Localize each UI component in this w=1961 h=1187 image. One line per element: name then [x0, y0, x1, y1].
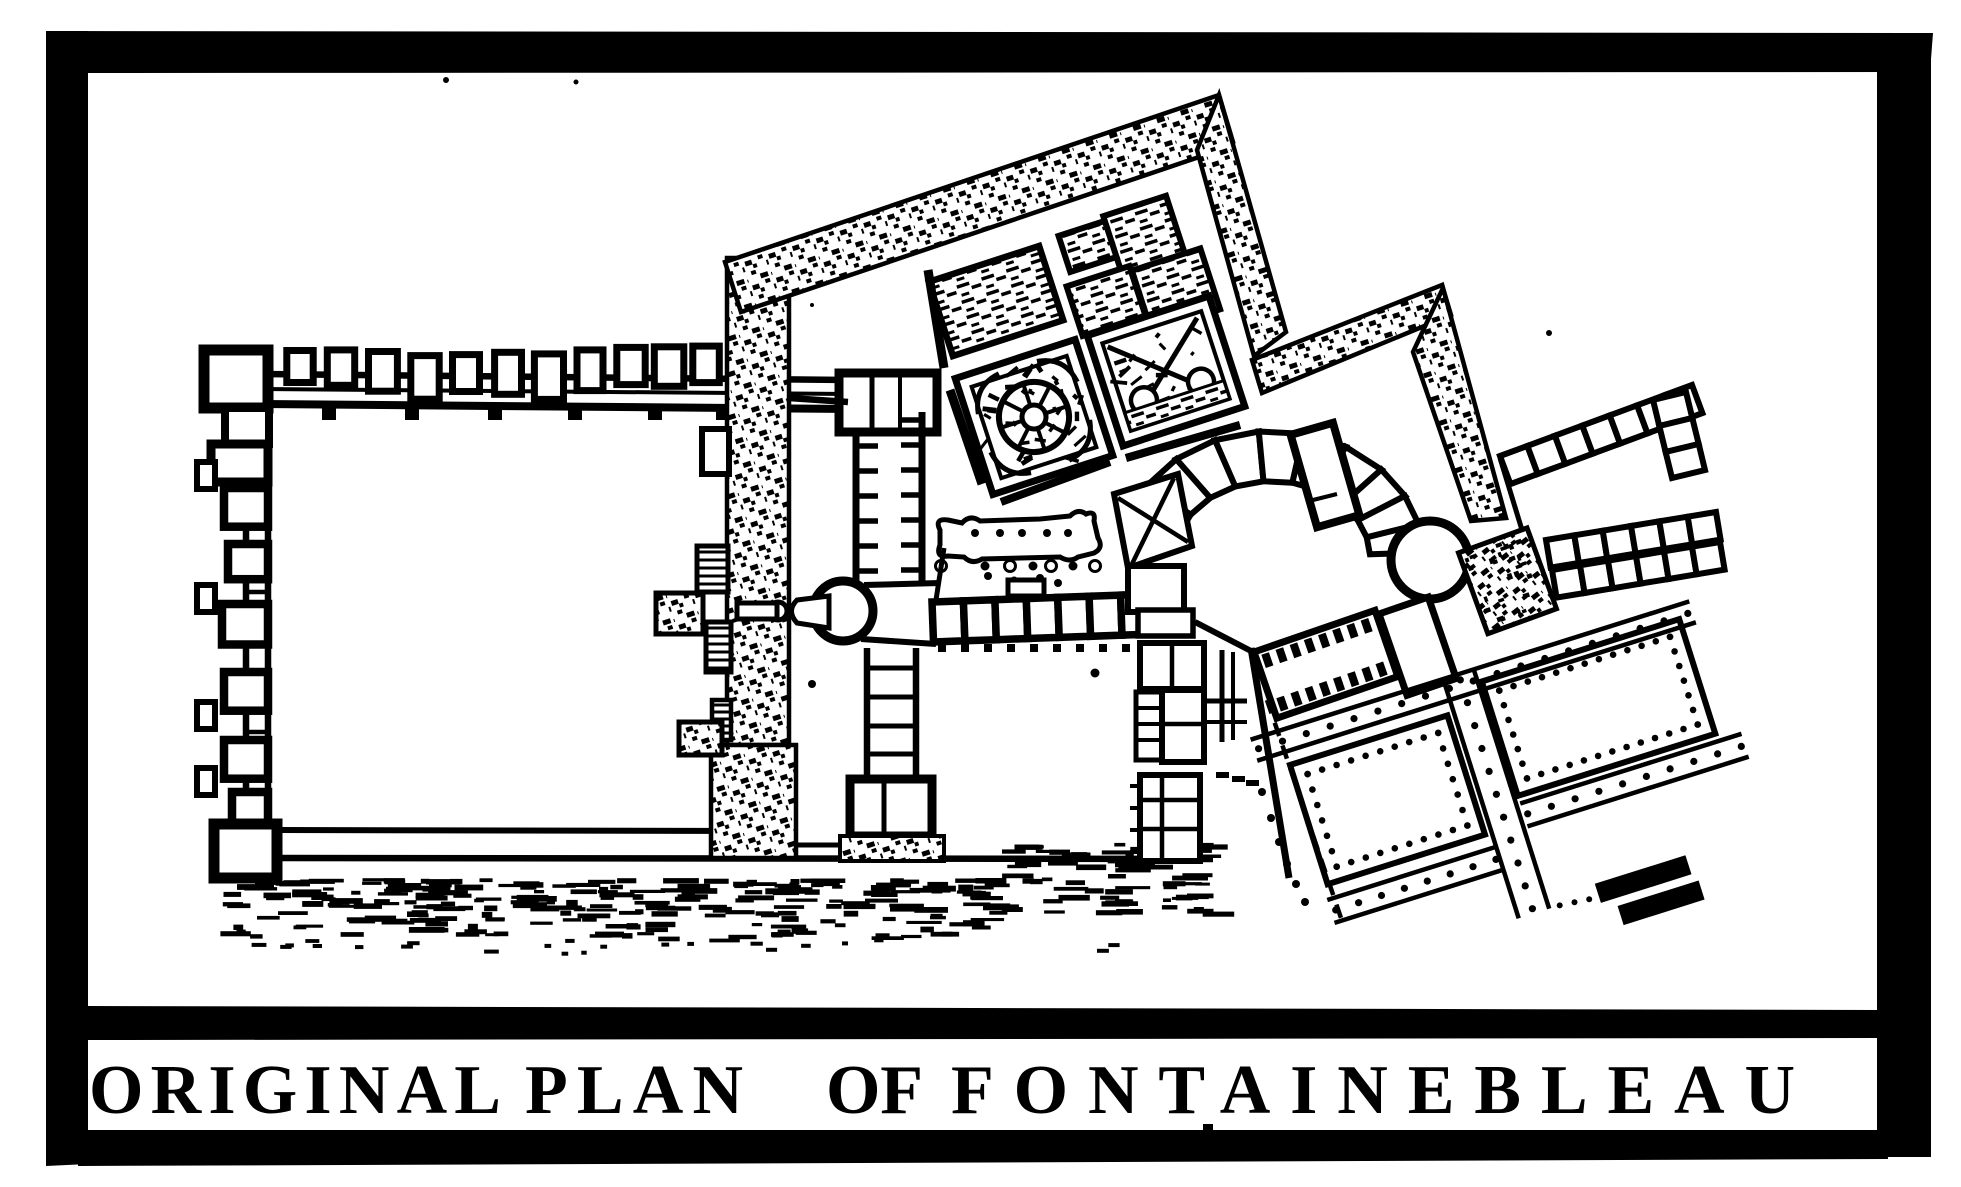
- svg-text:ORIGINAL: ORIGINAL: [89, 1052, 501, 1129]
- svg-text:PLAN: PLAN: [525, 1052, 743, 1129]
- svg-text:OF: OF: [826, 1052, 923, 1129]
